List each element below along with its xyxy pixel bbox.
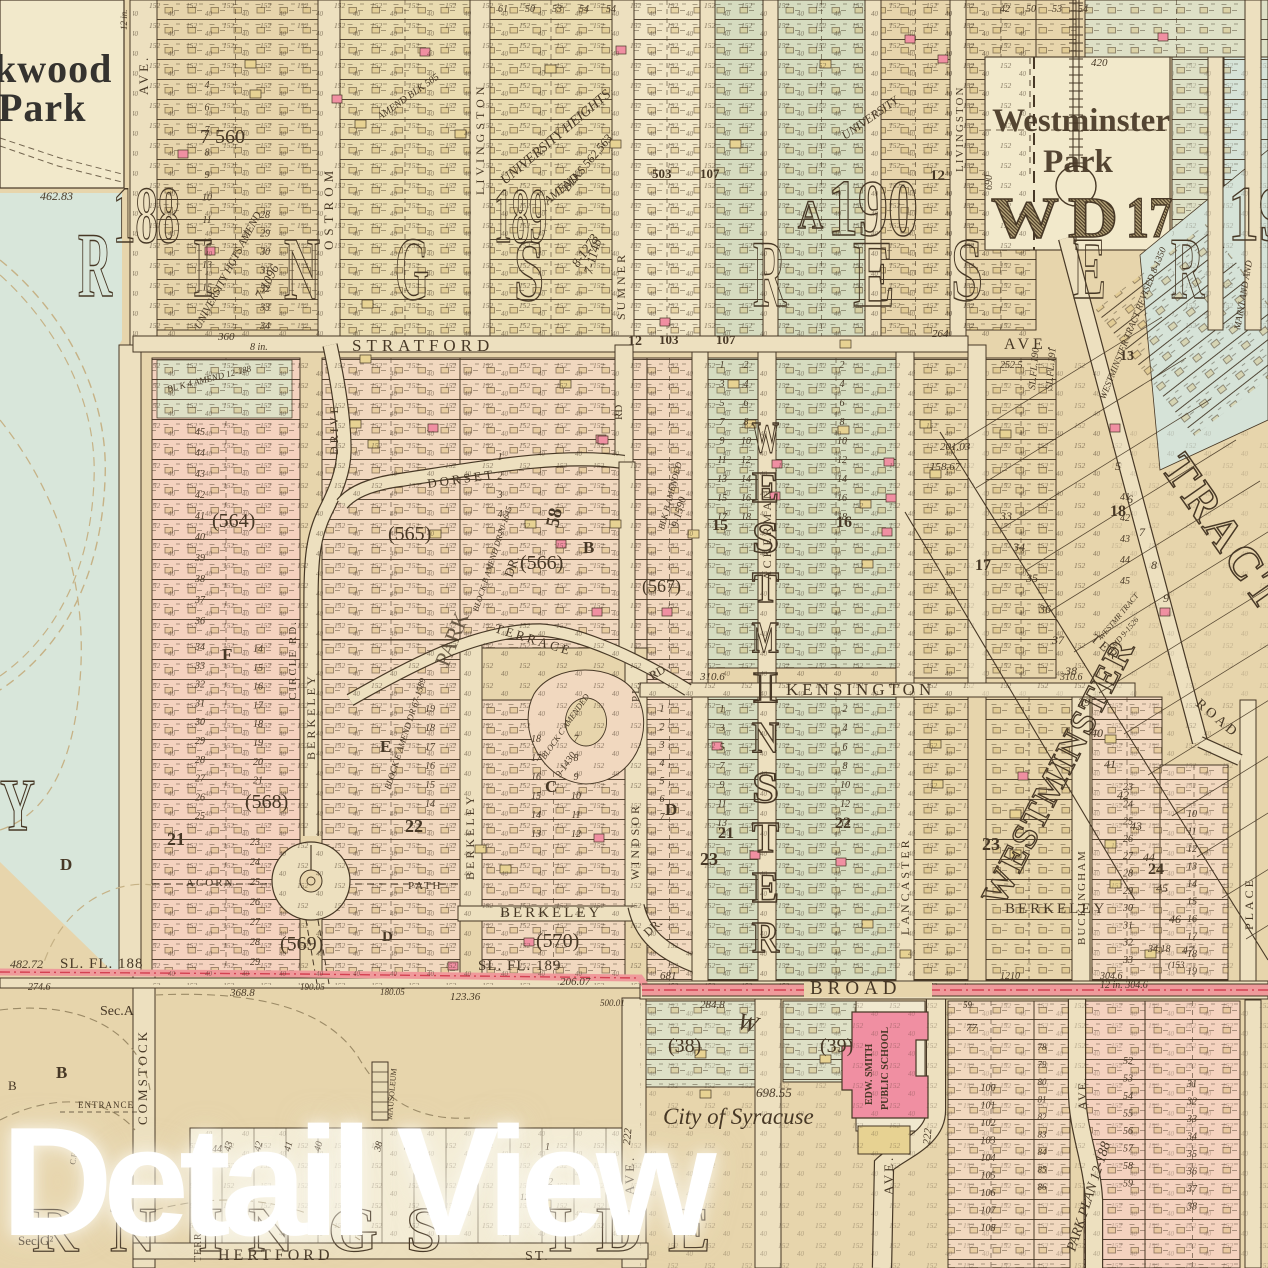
svg-text:(38): (38) — [668, 1035, 701, 1057]
svg-text:11: 11 — [717, 455, 726, 466]
svg-text:25: 25 — [195, 811, 205, 822]
svg-text:103: 103 — [659, 332, 679, 347]
svg-text:8: 8 — [840, 417, 845, 428]
svg-text:(569): (569) — [280, 933, 323, 955]
svg-text:F: F — [222, 645, 232, 664]
svg-text:S: S — [752, 513, 779, 562]
svg-text:201.03: 201.03 — [940, 441, 971, 453]
svg-text:36: 36 — [194, 616, 205, 627]
svg-text:15: 15 — [425, 780, 435, 791]
svg-text:12: 12 — [840, 799, 850, 810]
svg-text:45: 45 — [1120, 576, 1130, 587]
svg-text:SL. FL. 189: SL. FL. 189 — [478, 958, 562, 974]
svg-text:19: 19 — [425, 704, 435, 715]
svg-text:2: 2 — [744, 360, 749, 371]
svg-text:I: I — [752, 663, 779, 712]
svg-text:N: N — [284, 220, 320, 319]
svg-text:5: 5 — [720, 398, 725, 409]
svg-text:34: 34 — [1186, 1132, 1197, 1143]
svg-text:29: 29 — [1123, 886, 1133, 897]
svg-text:30: 30 — [1122, 903, 1133, 914]
svg-text:8: 8 — [843, 761, 848, 772]
svg-text:32: 32 — [194, 680, 205, 691]
svg-text:LANCASTER: LANCASTER — [898, 837, 912, 935]
svg-text:24: 24 — [250, 857, 260, 868]
svg-text:9: 9 — [720, 780, 725, 791]
svg-text:310.6: 310.6 — [699, 671, 725, 683]
svg-text:6: 6 — [744, 398, 749, 409]
svg-text:81: 81 — [1038, 1095, 1047, 1105]
svg-text:BERKELEY: BERKELEY — [500, 905, 602, 921]
svg-text:10: 10 — [837, 436, 847, 447]
svg-text:102: 102 — [981, 1118, 996, 1129]
svg-text:AVE.: AVE. — [881, 1155, 896, 1195]
svg-text:15: 15 — [531, 791, 541, 802]
svg-text:41: 41 — [195, 511, 205, 522]
svg-text:S: S — [951, 221, 983, 320]
svg-text:B: B — [56, 1063, 67, 1082]
svg-text:15: 15 — [253, 663, 263, 674]
svg-text:33: 33 — [1186, 1114, 1197, 1125]
svg-text:101: 101 — [981, 1101, 996, 1112]
svg-text:16: 16 — [531, 772, 541, 783]
svg-text:4: 4 — [843, 723, 848, 734]
svg-text:4: 4 — [205, 80, 210, 91]
svg-text:28: 28 — [260, 210, 270, 221]
svg-text:11: 11 — [571, 810, 580, 821]
svg-text:4: 4 — [498, 509, 503, 520]
svg-text:SUMNER: SUMNER — [614, 252, 628, 320]
svg-text:10: 10 — [571, 791, 581, 802]
svg-text:12: 12 — [628, 334, 642, 349]
svg-text:360: 360 — [217, 331, 235, 343]
svg-text:206.07: 206.07 — [560, 976, 591, 988]
svg-text:18: 18 — [253, 719, 263, 730]
svg-text:5: 5 — [498, 528, 503, 539]
svg-text:500.01: 500.01 — [600, 998, 625, 1008]
svg-text:180.05: 180.05 — [380, 987, 405, 997]
svg-text:108: 108 — [981, 1223, 996, 1234]
svg-text:C: C — [545, 777, 557, 796]
svg-text:13: 13 — [1187, 862, 1197, 873]
svg-text:R: R — [752, 913, 780, 962]
svg-text:(566): (566) — [520, 552, 563, 574]
svg-text:54: 54 — [579, 4, 589, 15]
svg-text:PLACE: PLACE — [1242, 877, 1256, 930]
svg-text:E: E — [853, 221, 895, 327]
svg-text:39: 39 — [194, 553, 205, 564]
svg-text:77: 77 — [966, 1022, 978, 1034]
svg-text:41: 41 — [1104, 757, 1116, 771]
svg-text:27: 27 — [250, 917, 261, 928]
svg-text:37: 37 — [1051, 633, 1065, 647]
svg-text:EDW. SMITH: EDW. SMITH — [864, 1043, 875, 1105]
svg-text:20: 20 — [253, 757, 263, 768]
svg-text:17: 17 — [717, 512, 728, 523]
svg-text:PATH: PATH — [408, 880, 443, 892]
svg-text:43: 43 — [1120, 534, 1130, 545]
svg-text:103: 103 — [981, 1136, 996, 1147]
svg-text:M: M — [752, 613, 779, 662]
svg-text:284.8: 284.8 — [700, 999, 725, 1011]
svg-text:78: 78 — [1038, 1042, 1048, 1052]
svg-text:9: 9 — [574, 772, 579, 783]
svg-text:31: 31 — [1122, 920, 1133, 931]
svg-text:11: 11 — [717, 799, 726, 810]
svg-text:46: 46 — [1169, 912, 1181, 926]
svg-text:54: 54 — [606, 4, 616, 15]
svg-text:33: 33 — [999, 509, 1012, 523]
svg-text:35: 35 — [1025, 571, 1038, 585]
svg-text:R: R — [1171, 221, 1205, 318]
svg-text:R: R — [753, 221, 787, 327]
svg-text:Park: Park — [1043, 144, 1113, 180]
svg-text:(564): (564) — [212, 510, 255, 532]
svg-text:D: D — [382, 929, 393, 945]
svg-text:32: 32 — [259, 284, 270, 295]
svg-text:N: N — [752, 713, 779, 762]
svg-text:47: 47 — [1182, 943, 1195, 957]
svg-text:E: E — [380, 737, 391, 756]
svg-text:17: 17 — [253, 700, 264, 711]
svg-text:12: 12 — [1187, 844, 1197, 855]
svg-text:3: 3 — [659, 740, 665, 751]
svg-text:37: 37 — [194, 595, 206, 606]
svg-text:LIVINGSTON: LIVINGSTON — [954, 86, 966, 172]
svg-text:43: 43 — [195, 469, 205, 480]
svg-text:E: E — [752, 863, 779, 912]
svg-text:17: 17 — [531, 753, 542, 764]
svg-text:6: 6 — [660, 794, 665, 805]
svg-text:(570): (570) — [536, 930, 579, 952]
svg-text:59: 59 — [1123, 1179, 1133, 1190]
svg-text:368.8: 368.8 — [229, 987, 255, 999]
svg-text:19: 19 — [1228, 170, 1268, 257]
svg-text:85: 85 — [1038, 1165, 1048, 1175]
svg-text:107: 107 — [716, 332, 736, 347]
svg-text:58: 58 — [1123, 1161, 1133, 1172]
svg-text:681: 681 — [660, 970, 677, 982]
svg-text:(153: (153 — [1168, 960, 1185, 970]
svg-text:31: 31 — [1186, 1079, 1197, 1090]
svg-text:698.55: 698.55 — [756, 1085, 792, 1100]
svg-text:40: 40 — [195, 532, 205, 543]
svg-text:AVE.: AVE. — [136, 55, 151, 95]
svg-text:13: 13 — [1120, 349, 1134, 364]
svg-text:43: 43 — [1130, 819, 1142, 833]
svg-text:34: 34 — [259, 321, 270, 332]
svg-text:14: 14 — [253, 644, 263, 655]
svg-text:27: 27 — [1123, 851, 1134, 862]
svg-text:2: 2 — [843, 704, 848, 715]
svg-text:G: G — [395, 220, 429, 319]
svg-text:A: A — [798, 192, 823, 237]
svg-text:189: 189 — [494, 172, 547, 259]
svg-text:44: 44 — [195, 448, 205, 459]
svg-text:6: 6 — [840, 398, 845, 409]
svg-text:42: 42 — [1117, 788, 1129, 802]
svg-text:18: 18 — [741, 512, 751, 523]
svg-text:25: 25 — [250, 877, 260, 888]
svg-text:42: 42 — [1000, 4, 1010, 15]
svg-text:T: T — [752, 813, 779, 862]
svg-text:E: E — [752, 463, 779, 512]
svg-text:ACORN: ACORN — [186, 877, 235, 889]
svg-text:12 in.: 12 in. — [119, 9, 129, 30]
svg-text:53: 53 — [1052, 4, 1062, 15]
svg-text:2: 2 — [498, 471, 503, 482]
svg-text:34: 34 — [194, 642, 205, 653]
svg-text:23: 23 — [700, 849, 718, 869]
svg-text:B: B — [583, 538, 594, 557]
svg-text:31: 31 — [194, 698, 205, 709]
svg-text:12: 12 — [571, 829, 581, 840]
svg-text:8: 8 — [574, 753, 579, 764]
svg-text:190.05: 190.05 — [300, 982, 325, 992]
svg-text:STRATFORD: STRATFORD — [352, 336, 494, 355]
svg-text:2: 2 — [840, 360, 845, 371]
svg-text:28: 28 — [250, 937, 260, 948]
svg-text:264: 264 — [932, 328, 949, 340]
svg-text:9: 9 — [720, 436, 725, 447]
svg-text:SL. FL. 188: SL. FL. 188 — [60, 956, 144, 972]
svg-text:W: W — [752, 413, 779, 462]
svg-text:12: 12 — [930, 168, 945, 184]
svg-text:222: 222 — [921, 1127, 934, 1145]
svg-text:3: 3 — [719, 379, 725, 390]
svg-text:45: 45 — [1156, 881, 1168, 895]
svg-text:61: 61 — [498, 4, 508, 15]
svg-text:55: 55 — [1123, 1109, 1133, 1120]
svg-text:14: 14 — [425, 799, 435, 810]
svg-text:19: 19 — [1187, 967, 1197, 978]
svg-text:106: 106 — [981, 1188, 996, 1199]
svg-text:59: 59 — [963, 1000, 973, 1010]
svg-text:(565): (565) — [388, 523, 431, 545]
svg-text:33: 33 — [1122, 955, 1133, 966]
svg-text:29: 29 — [195, 736, 205, 747]
svg-text:17: 17 — [1187, 932, 1198, 943]
svg-text:S: S — [752, 763, 779, 812]
svg-text:8: 8 — [1151, 558, 1157, 572]
svg-text:4: 4 — [744, 379, 749, 390]
svg-text:(567): (567) — [642, 576, 681, 597]
svg-text:32: 32 — [1186, 1097, 1197, 1108]
svg-text:4: 4 — [840, 379, 845, 390]
svg-text:BERKELEY: BERKELEY — [463, 793, 477, 880]
svg-text:21: 21 — [167, 829, 185, 849]
svg-text:Westminster: Westminster — [992, 103, 1170, 139]
svg-text:27: 27 — [195, 774, 206, 785]
svg-text:9: 9 — [205, 170, 210, 181]
svg-text:107: 107 — [981, 1206, 997, 1217]
svg-text:482.72: 482.72 — [10, 957, 43, 971]
svg-text:DRIVE: DRIVE — [327, 403, 341, 455]
svg-text:84: 84 — [1038, 1147, 1048, 1157]
svg-text:17: 17 — [1126, 185, 1172, 250]
svg-text:12 in. 304.6: 12 in. 304.6 — [1100, 980, 1148, 991]
svg-text:105: 105 — [981, 1171, 996, 1182]
svg-text:38: 38 — [1064, 664, 1077, 678]
svg-text:8: 8 — [744, 417, 749, 428]
svg-text:36: 36 — [1186, 1167, 1197, 1178]
svg-text:16: 16 — [253, 682, 263, 693]
svg-text:1: 1 — [498, 452, 503, 463]
svg-text:13: 13 — [531, 829, 541, 840]
svg-text:11: 11 — [1187, 827, 1196, 838]
svg-text:I: I — [193, 221, 213, 315]
svg-text:12: 12 — [741, 455, 751, 466]
svg-text:2: 2 — [660, 722, 665, 733]
svg-text:BERKELEY: BERKELEY — [1005, 901, 1107, 917]
svg-text:3: 3 — [497, 490, 503, 501]
svg-text:252.5: 252.5 — [1000, 360, 1023, 371]
svg-text:16: 16 — [425, 761, 435, 772]
svg-text:D: D — [60, 855, 72, 874]
svg-text:83: 83 — [1038, 1130, 1048, 1140]
svg-text:16: 16 — [741, 493, 751, 504]
svg-text:30: 30 — [259, 247, 270, 258]
svg-text:AVE.: AVE. — [1075, 1076, 1089, 1110]
svg-text:13: 13 — [717, 818, 727, 829]
svg-text:10: 10 — [1187, 809, 1197, 820]
svg-text:54: 54 — [1078, 4, 1088, 15]
svg-text:B: B — [8, 1078, 17, 1093]
svg-text:30: 30 — [194, 717, 205, 728]
svg-text:462.83: 462.83 — [40, 189, 73, 203]
svg-text:34: 34 — [1012, 540, 1025, 554]
svg-text:R: R — [78, 214, 113, 316]
svg-text:Park: Park — [0, 85, 86, 130]
svg-text:1: 1 — [720, 704, 725, 715]
svg-text:17: 17 — [975, 557, 991, 574]
svg-text:36: 36 — [1038, 602, 1051, 616]
svg-text:33: 33 — [259, 303, 270, 314]
svg-text:38: 38 — [1186, 1202, 1197, 1213]
svg-text:4: 4 — [660, 758, 665, 769]
svg-text:44: 44 — [1120, 555, 1130, 566]
svg-text:17: 17 — [425, 742, 436, 753]
svg-text:107: 107 — [700, 166, 720, 181]
svg-text:8 in.: 8 in. — [250, 342, 268, 353]
svg-text:LIVINGSTON: LIVINGSTON — [473, 83, 487, 195]
svg-text:35: 35 — [1186, 1149, 1197, 1160]
svg-text:53: 53 — [1123, 1074, 1133, 1085]
svg-text:PL.: PL. — [630, 680, 642, 702]
svg-text:5: 5 — [660, 776, 665, 787]
svg-text:PUBLIC SCHOOL: PUBLIC SCHOOL — [880, 1027, 891, 1110]
svg-text:KENSINGTON: KENSINGTON — [786, 680, 935, 699]
svg-text:5: 5 — [720, 742, 725, 753]
svg-text:16: 16 — [1187, 914, 1197, 925]
svg-text:WINDSOR: WINDSOR — [628, 803, 642, 880]
svg-text:3: 3 — [719, 723, 725, 734]
svg-text:28: 28 — [195, 755, 205, 766]
svg-text:9: 9 — [1163, 591, 1169, 605]
svg-text:CIRCLE RD.: CIRCLE RD. — [287, 620, 299, 700]
svg-text:13: 13 — [717, 474, 727, 485]
svg-text:21: 21 — [253, 776, 263, 787]
svg-text:14: 14 — [1187, 879, 1197, 890]
svg-text:15: 15 — [1187, 897, 1197, 908]
svg-text:50: 50 — [1026, 4, 1036, 15]
svg-text:10: 10 — [202, 193, 212, 204]
svg-text:18: 18 — [425, 723, 435, 734]
svg-text:6: 6 — [205, 103, 210, 114]
svg-text:503: 503 — [652, 166, 672, 181]
svg-text:18: 18 — [531, 734, 541, 745]
svg-text:OSTROM: OSTROM — [321, 166, 336, 250]
svg-text:56: 56 — [1123, 1126, 1133, 1137]
svg-text:50: 50 — [525, 4, 535, 15]
svg-text:D: D — [1068, 185, 1118, 250]
svg-text:18: 18 — [837, 512, 847, 523]
svg-text:26: 26 — [1123, 834, 1133, 845]
svg-text:33: 33 — [194, 661, 205, 672]
svg-text:12: 12 — [837, 455, 847, 466]
svg-text:123.36: 123.36 — [450, 991, 481, 1003]
svg-text:100: 100 — [981, 1083, 996, 1094]
svg-text:10: 10 — [840, 780, 850, 791]
svg-text:158.67: 158.67 — [930, 461, 961, 473]
svg-text:RD: RD — [613, 405, 625, 420]
svg-text:8: 8 — [205, 148, 210, 159]
svg-text:86: 86 — [1038, 1182, 1048, 1192]
svg-text:BROAD: BROAD — [810, 978, 902, 999]
svg-text:14: 14 — [531, 810, 541, 821]
svg-text:54: 54 — [1123, 1091, 1133, 1102]
svg-text:420: 420 — [1091, 57, 1108, 69]
svg-text:14: 14 — [837, 474, 847, 485]
svg-text:31: 31 — [259, 266, 270, 277]
svg-text:52: 52 — [1123, 1056, 1133, 1067]
svg-text:1: 1 — [660, 704, 665, 715]
svg-text:42: 42 — [195, 490, 205, 501]
svg-text:5: 5 — [1115, 459, 1121, 473]
svg-text:42: 42 — [1120, 513, 1130, 524]
svg-text:44: 44 — [1143, 850, 1155, 864]
svg-text:T: T — [752, 563, 779, 612]
svg-text:37: 37 — [1186, 1184, 1198, 1195]
svg-text:BERKELEY: BERKELEY — [304, 673, 318, 760]
svg-text:1210: 1210 — [1000, 971, 1020, 982]
svg-text:19: 19 — [253, 738, 263, 749]
svg-text:57: 57 — [1123, 1144, 1134, 1155]
svg-text:79: 79 — [1038, 1060, 1048, 1070]
svg-text:188: 188 — [113, 172, 180, 260]
svg-text:82: 82 — [1038, 1112, 1048, 1122]
svg-text:34.18: 34.18 — [1147, 944, 1171, 955]
svg-text:14: 14 — [741, 474, 751, 485]
svg-text:45: 45 — [195, 427, 205, 438]
svg-text:28: 28 — [1123, 869, 1133, 880]
svg-text:274.6: 274.6 — [28, 982, 51, 993]
svg-text:W: W — [991, 185, 1059, 250]
svg-text:7: 7 — [1139, 525, 1146, 539]
svg-text:29: 29 — [250, 957, 260, 968]
svg-text:14: 14 — [840, 818, 850, 829]
svg-text:32: 32 — [1122, 938, 1133, 949]
svg-text:23: 23 — [250, 837, 260, 848]
svg-text:38: 38 — [194, 574, 205, 585]
svg-text:1: 1 — [720, 360, 725, 371]
svg-text:29: 29 — [260, 229, 270, 240]
svg-text:22: 22 — [405, 816, 423, 836]
svg-text:D: D — [665, 800, 677, 819]
svg-text:(39): (39) — [820, 1035, 853, 1057]
svg-text:104: 104 — [981, 1153, 996, 1164]
svg-text:26: 26 — [250, 897, 260, 908]
